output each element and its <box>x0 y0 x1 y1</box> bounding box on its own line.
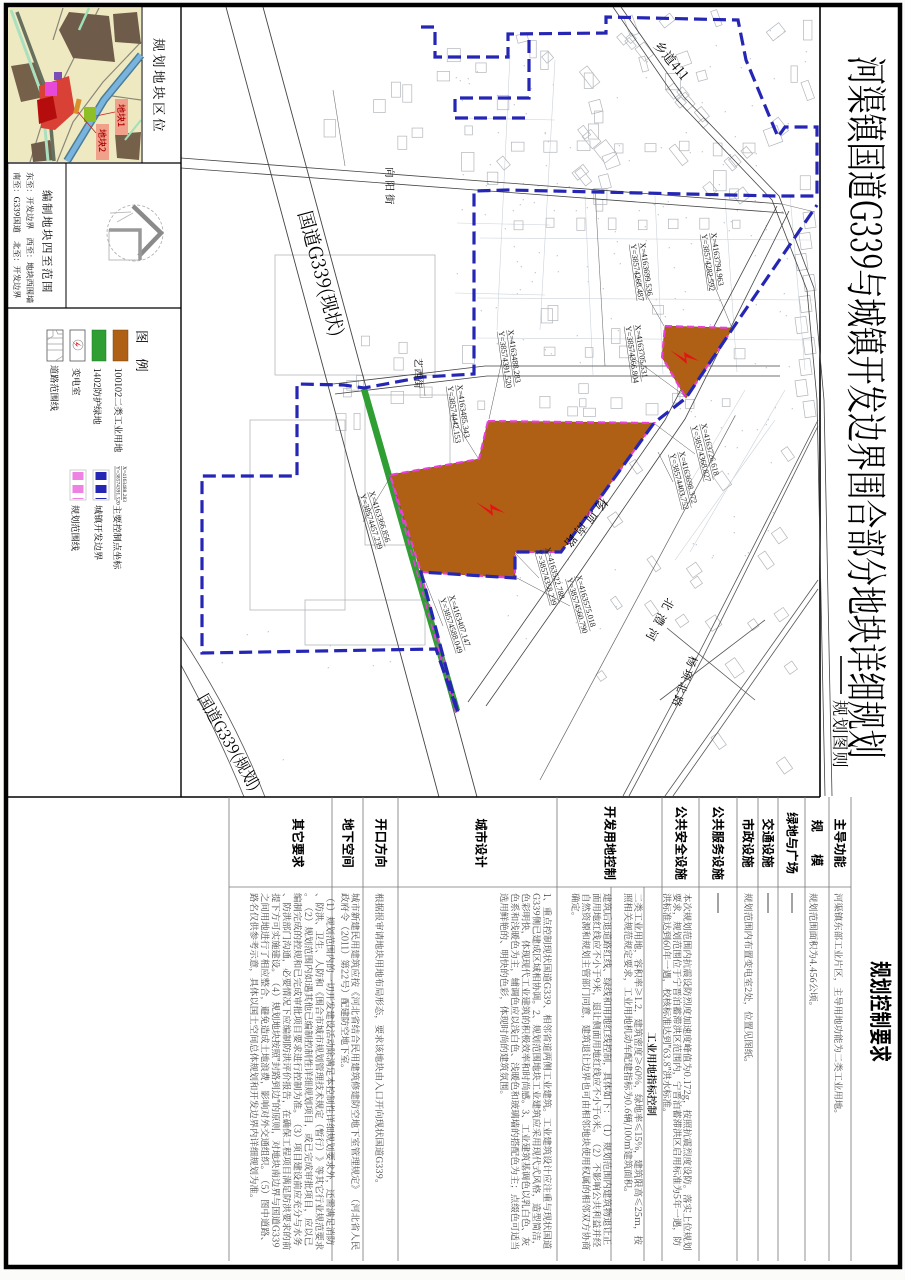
svg-text:Y=38574391.520: Y=38574391.520 <box>115 466 121 505</box>
svg-text:X=4163488.283: X=4163488.283 <box>121 466 127 502</box>
